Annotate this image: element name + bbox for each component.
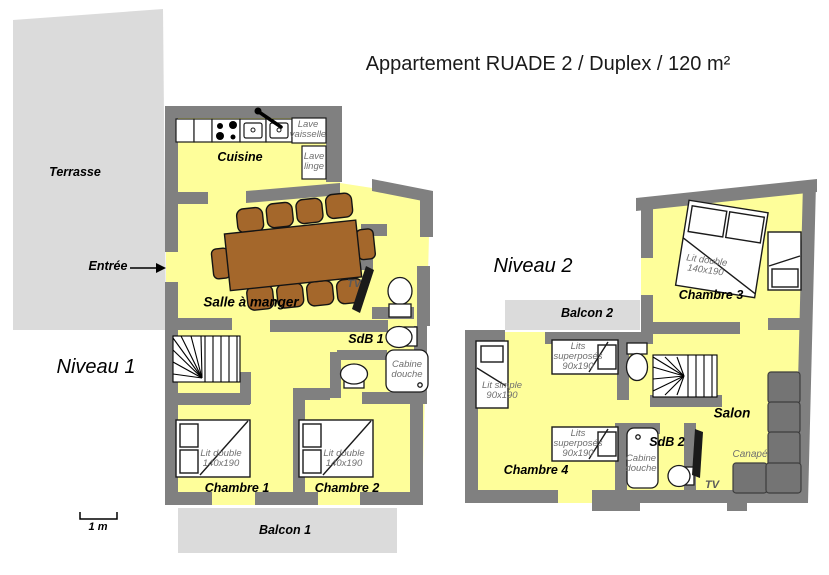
bed-simple-icon xyxy=(476,341,508,408)
toilet1-icon xyxy=(388,278,412,318)
floor-plan: Appartement RUADE 2 / Duplex / 120 m² Te… xyxy=(0,0,829,575)
chair-icon xyxy=(325,193,353,220)
chair-icon xyxy=(295,198,323,225)
balcon1-area xyxy=(178,508,397,553)
bed-chambre1-icon xyxy=(176,420,250,477)
washbasin1-icon xyxy=(386,327,417,348)
balcon2-area xyxy=(505,300,640,330)
chair-icon xyxy=(276,282,304,309)
bed-chambre2-icon xyxy=(299,420,373,477)
bunkbed2-icon xyxy=(552,427,618,461)
stairs-level2-icon xyxy=(653,355,717,397)
stairs-level1-icon xyxy=(173,336,240,382)
bed-single3-icon xyxy=(768,232,801,290)
washbasin2-icon xyxy=(668,466,694,487)
washer-icon xyxy=(302,146,326,179)
shower1-icon xyxy=(386,350,428,392)
sink-bowl-icon xyxy=(244,123,262,138)
terrasse-area xyxy=(13,9,166,330)
bed-double3-icon xyxy=(676,200,768,297)
scale-bar-icon xyxy=(80,512,117,519)
dishwasher-icon xyxy=(292,118,326,143)
shower2-icon xyxy=(627,428,658,488)
floor-plan-drawing xyxy=(0,0,829,575)
chair-icon xyxy=(236,207,264,234)
chair-icon xyxy=(306,280,334,307)
chair-icon xyxy=(266,202,294,229)
washbasin1b-icon xyxy=(341,364,368,388)
bunkbed1-icon xyxy=(552,340,618,374)
toilet2-icon xyxy=(627,343,648,381)
